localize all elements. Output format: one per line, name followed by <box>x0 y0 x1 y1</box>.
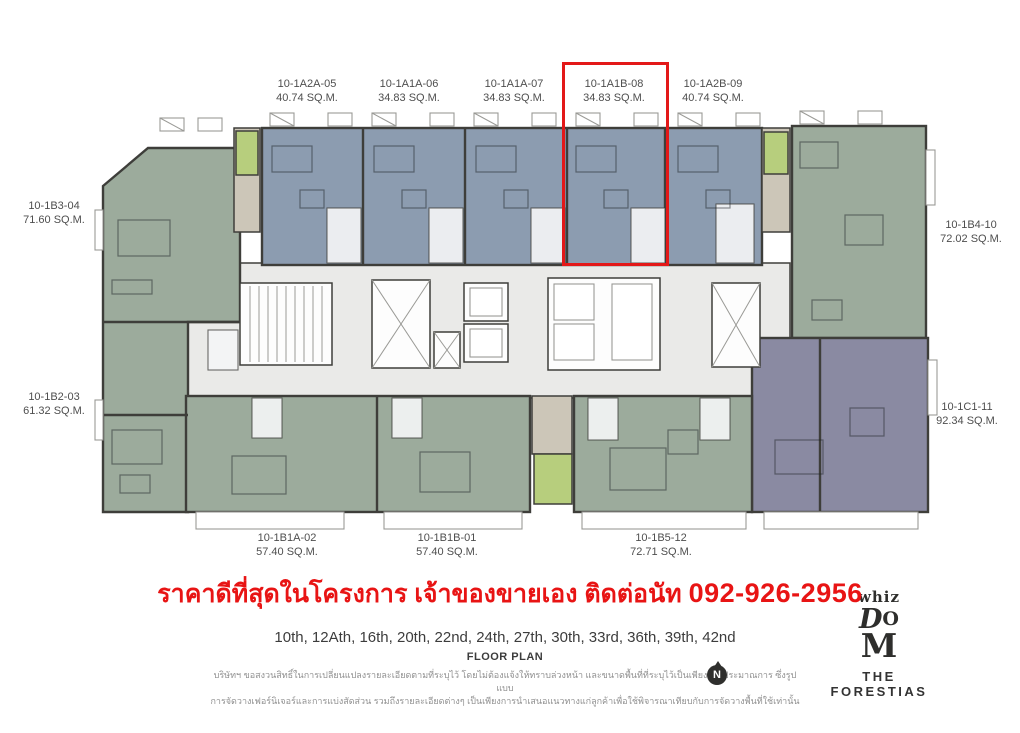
unit-id: 10-1B1A-02 <box>225 532 349 546</box>
unit-label-04: 10-1B3-04 71.60 SQ.M. <box>0 200 113 227</box>
service-strip <box>532 396 572 454</box>
brand-name: THE FORESTIAS <box>813 669 945 699</box>
north-compass-icon: N <box>705 661 731 687</box>
plan-title: FLOOR PLAN <box>130 651 880 663</box>
unit-area: 71.60 SQ.M. <box>0 214 113 228</box>
highlight-box <box>562 62 669 266</box>
unit-id: 10-1C1-11 <box>908 401 1020 415</box>
floors-list: 10th, 12Ath, 16th, 20th, 22nd, 24th, 27t… <box>130 629 880 646</box>
garden-balcony <box>236 131 258 175</box>
balconies <box>196 512 918 529</box>
unit-area: 57.40 SQ.M. <box>225 546 349 560</box>
unit-id: 10-1B2-03 <box>0 391 113 405</box>
unit-label-09: 10-1A2B-09 40.74 SQ.M. <box>651 78 775 105</box>
unit-area: 57.40 SQ.M. <box>385 546 509 560</box>
unit-id: 10-1B3-04 <box>0 200 113 214</box>
unit-label-01: 10-1B1B-01 57.40 SQ.M. <box>385 532 509 559</box>
unit-label-02: 10-1B1A-02 57.40 SQ.M. <box>225 532 349 559</box>
unit-id: 10-1B1B-01 <box>385 532 509 546</box>
garden-balcony <box>534 454 572 504</box>
north-letter: N <box>707 665 727 685</box>
unit-label-12: 10-1B5-12 72.71 SQ.M. <box>599 532 723 559</box>
unit-id: 10-1B4-10 <box>912 219 1020 233</box>
promo-banner: ราคาดีที่สุดในโครงการ เจ้าของขายเอง ติดต… <box>0 578 1020 609</box>
unit-id: 10-1A2B-09 <box>651 78 775 92</box>
unit-label-10: 10-1B4-10 72.02 SQ.M. <box>912 219 1020 246</box>
promo-text: ราคาดีที่สุดในโครงการ เจ้าของขายเอง ติดต… <box>157 580 681 608</box>
unit-area: 72.02 SQ.M. <box>912 233 1020 247</box>
disclaimer-line-2: การจัดวางเฟอร์นิเจอร์และการแบ่งสัดส่วน ร… <box>210 695 800 708</box>
garden-balcony <box>764 132 788 174</box>
unit-area: 40.74 SQ.M. <box>651 92 775 106</box>
unit-area: 72.71 SQ.M. <box>599 546 723 560</box>
logo-m: M <box>813 631 945 661</box>
elevators <box>464 278 660 370</box>
floor-plan <box>90 55 940 540</box>
unit-02-01-band <box>186 396 530 512</box>
unit-11-region <box>752 338 928 512</box>
unit-area: 92.34 SQ.M. <box>908 415 1020 429</box>
unit-id: 10-1B5-12 <box>599 532 723 546</box>
unit-label-03: 10-1B2-03 61.32 SQ.M. <box>0 391 113 418</box>
unit-area: 61.32 SQ.M. <box>0 405 113 419</box>
phone-number: 092-926-2956 <box>689 578 863 608</box>
unit-label-11: 10-1C1-11 92.34 SQ.M. <box>908 401 1020 428</box>
